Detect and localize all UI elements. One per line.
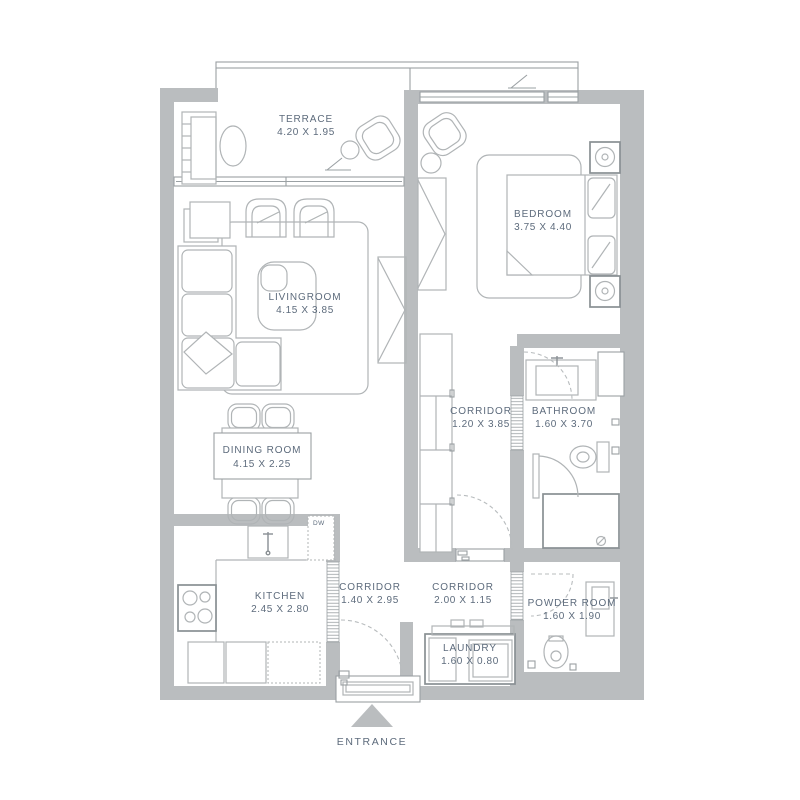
bedroom-window: [420, 92, 578, 102]
room-dims-livingroom: 4.15 X 3.85: [276, 305, 334, 316]
room-name-corridor-entry: CORRIDOR: [339, 582, 401, 593]
room-dims-dining: 4.15 X 2.25: [233, 459, 291, 470]
room-name-terrace: TERRACE: [279, 114, 333, 125]
dining-label-box: [214, 433, 311, 479]
side-table: [184, 202, 230, 242]
room-dims-laundry: 1.60 X 0.80: [441, 656, 499, 667]
plant-icon: [220, 126, 246, 166]
powder-vanity: [586, 582, 618, 636]
bathroom-sliding-door: [511, 396, 523, 450]
kitchen-sink: [248, 526, 288, 558]
powder-toilet: [528, 636, 576, 670]
room-name-corridor-main: CORRIDOR: [450, 406, 512, 417]
floor-plan-canvas: TERRACE 4.20 X 1.95 BEDROOM 3.75 X 4.40 …: [0, 0, 800, 800]
room-name-dining: DINING ROOM: [223, 445, 302, 456]
corridor-door: [456, 495, 512, 561]
room-dims-bathroom: 1.60 X 3.70: [535, 419, 593, 430]
bedroom-chair: [419, 108, 470, 159]
base-cabinet-1: [188, 642, 224, 683]
dining-chair-2: [262, 404, 294, 431]
room-dims-corridor-entry: 1.40 X 2.95: [341, 595, 399, 606]
room-dims-powder: 1.60 X 1.90: [543, 611, 601, 622]
bathroom-vanity-sink: [526, 356, 596, 400]
armchair-1: [246, 199, 286, 237]
room-name-bathroom: BATHROOM: [532, 406, 596, 417]
nightstand-2: [590, 276, 620, 307]
room-name-laundry: LAUNDRY: [443, 643, 497, 654]
bedroom-furniture: [418, 108, 620, 307]
powder-sliding-door: [511, 572, 523, 620]
room-name-corridor-hall: CORRIDOR: [432, 582, 494, 593]
room-dims-terrace: 4.20 X 1.95: [277, 127, 335, 138]
kitchen-sliding-door: [327, 562, 339, 642]
terrace-side-table: [341, 141, 359, 159]
nightstand-1: [590, 142, 620, 173]
floor-plan: TERRACE 4.20 X 1.95 BEDROOM 3.75 X 4.40 …: [0, 0, 800, 800]
dishwasher-label: DW: [313, 520, 325, 527]
room-name-bedroom: BEDROOM: [514, 209, 572, 220]
base-cabinet-2: [226, 642, 266, 683]
room-dims-corridor-hall: 2.00 X 1.15: [434, 595, 492, 606]
room-name-powder: POWDER ROOM: [528, 598, 617, 609]
powder-door-swing: [531, 574, 573, 616]
room-name-livingroom: LIVINGROOM: [269, 292, 342, 303]
room-dims-bedroom: 3.75 X 4.40: [514, 222, 572, 233]
dining-chair-1: [228, 404, 260, 431]
entrance-arrow-icon: [351, 704, 393, 727]
corridor-closet: [420, 334, 454, 552]
powder-room-fixtures: [528, 574, 618, 670]
shower: [543, 494, 619, 548]
tv-unit: [378, 257, 406, 363]
armchair-2: [294, 199, 334, 237]
terrace-chair: [352, 112, 404, 164]
room-dims-corridor-main: 1.20 X 3.85: [452, 419, 510, 430]
stove: [178, 585, 216, 631]
room-dims-kitchen: 2.45 X 2.80: [251, 604, 309, 615]
wall-niche: [598, 352, 624, 396]
wardrobe: [418, 178, 446, 290]
terrace-bench: [182, 112, 216, 184]
kitchen-appliance: [268, 642, 320, 683]
entrance-label: ENTRANCE: [337, 736, 408, 748]
bedroom-side-table: [421, 153, 441, 173]
room-name-kitchen: KITCHEN: [255, 591, 305, 602]
sofa: [178, 246, 281, 390]
